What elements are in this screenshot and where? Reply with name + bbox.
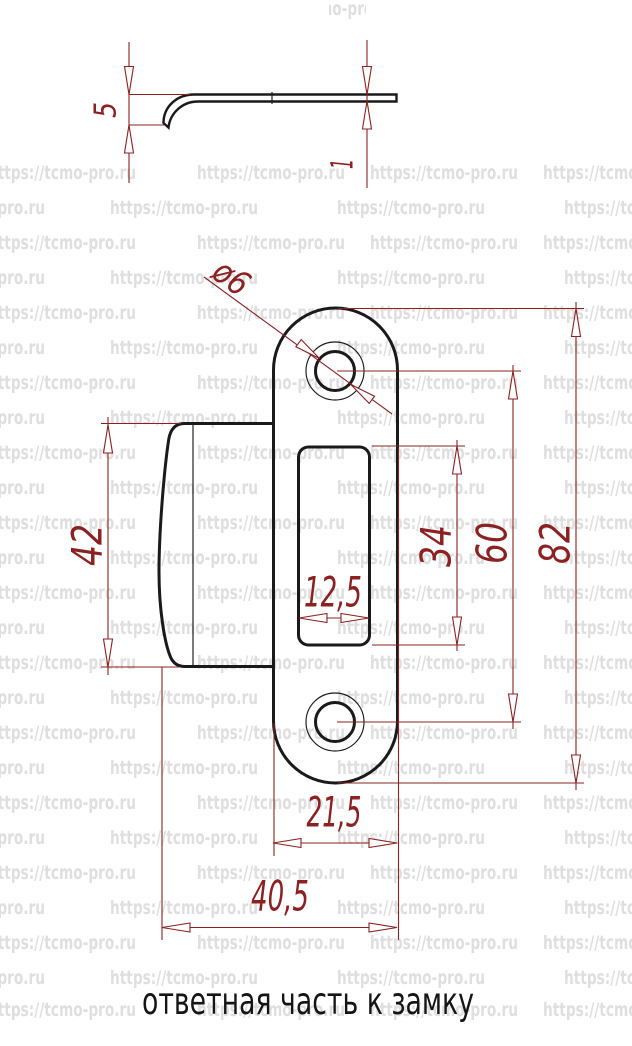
watermark-text: https://tcmo-pro.ru [197,372,345,394]
watermark-text: https://tcmo-pro.ru [337,897,485,919]
watermark-text: https://tcmo-pro.ru [564,477,632,499]
dim-label-tab-height: 42 [63,524,112,566]
watermark-text: https://tcmo-pro.ru [0,862,136,884]
watermark-text: https://tcmo-pro.ru [0,792,136,814]
dim-plate-thickness: 1 [326,40,372,188]
watermark-text: https://tcmo-pro.ru [247,0,395,20]
watermark-top-fragment: https://tcmo-pro.ru [247,0,395,20]
watermark-text: https://tcmo-pro.ru [0,687,45,709]
watermark-text: https://tcmo-pro.ru [0,897,45,919]
watermark-text: https://tcmo-pro.ru [197,932,345,954]
watermark-text: https://tcmo-pro.ru [337,757,485,779]
arrow-up [104,425,113,453]
arrow-up [363,101,372,129]
watermark-text: https://tcmo-pro.ru [370,302,518,324]
watermark-text: https://tcmo-pro.ru [0,337,45,359]
watermark-text: https://tcmo-pro.ru [370,862,518,884]
watermark-text: https://tcmo-pro.ru [0,757,45,779]
watermark-text: https://tcmo-pro.ru [0,827,45,849]
watermark-text: https://tcmo-pro.ru [337,617,485,639]
watermark-text: https://tcmo-pro.ru [0,442,136,464]
dim-label-plate-height: 82 [531,522,580,564]
watermark-text: https://tcmo-pro.ru [197,302,345,324]
watermark-text: https://tcmo-pro.ru [110,547,258,569]
watermark-text: https://tcmo-pro.ru [370,442,518,464]
watermark-text: https://tcmo-pro.ru [0,267,45,289]
dim-label-slot-height: 34 [412,525,461,567]
watermark-text: https://tcmo-pro.ru [370,162,518,184]
watermark-text: https://tcmo-pro.ru [543,162,632,184]
watermark-text: https://tcmo-pro.ru [0,617,45,639]
watermark-text: https://tcmo-pro.ru [370,722,518,744]
drawing-caption: ответная часть к замку [142,980,474,1023]
dim-label-holes-spacing: 60 [468,522,517,564]
watermark-text: https://tcmo-pro.ru [564,337,632,359]
watermark-text: https://tcmo-pro.ru [564,197,632,219]
watermark-text: https://tcmo-pro.ru [564,967,632,989]
watermark-text: https://tcmo-pro.ru [543,372,632,394]
watermark-text: https://tcmo-pro.ru [370,582,518,604]
watermark-text: https://tcmo-pro.ru [0,652,136,674]
watermark-text: https://tcmo-pro.ru [564,617,632,639]
watermark-text: https://tcmo-pro.ru [197,442,345,464]
watermark-text: https://tcmo-pro.ru [564,687,632,709]
watermark-text: https://tcmo-pro.ru [543,652,632,674]
watermark-text: https://tcmo-pro.ru [370,652,518,674]
watermark-text: https://tcmo-pro.ru [110,757,258,779]
watermark-text: https://tcmo-pro.ru [110,477,258,499]
watermark-text: https://tcmo-pro.ru [0,372,136,394]
watermark-text: https://tcmo-pro.ru [337,197,485,219]
watermark-text: https://tcmo-pro.ru [543,932,632,954]
dim-label-body-width: 21,5 [307,788,362,837]
technical-drawing: https://tcmo-pro.ruhttps://tcmo-pro.ruht… [0,0,632,1046]
watermark-text: https://tcmo-pro.ru [0,932,136,954]
watermark-text: https://tcmo-pro.ru [110,827,258,849]
watermark-text: https://tcmo-pro.ru [564,267,632,289]
watermark-text: https://tcmo-pro.ru [0,407,45,429]
watermark-text: https://tcmo-pro.ru [370,792,518,814]
watermark-text: https://tcmo-pro.ru [0,232,136,254]
watermark-text: https://tcmo-pro.ru [543,999,632,1021]
watermark-text: https://tcmo-pro.ru [564,407,632,429]
watermark-text: https://tcmo-pro.ru [370,232,518,254]
arrow-left [162,923,190,932]
watermark-text: https://tcmo-pro.ru [543,582,632,604]
dim-label-hole-diameter: ø6 [204,251,257,305]
watermark-text: https://tcmo-pro.ru [564,897,632,919]
watermark-text: https://tcmo-pro.ru [0,477,45,499]
arrow-left [273,839,301,848]
side-profile-outline [164,95,397,128]
arrow-right [369,923,397,932]
watermark-text: https://tcmo-pro.ru [0,197,45,219]
dim-label-lip-height: 5 [89,102,124,118]
arrow-up [125,125,134,153]
watermark-text: https://tcmo-pro.ru [337,477,485,499]
watermark-text: https://tcmo-pro.ru [0,582,136,604]
watermark-text: https://tcmo-pro.ru [0,999,136,1021]
watermark-text: https://tcmo-pro.ru [110,687,258,709]
arrow-down [363,67,372,95]
dim-label-plate-thickness: 1 [326,159,361,169]
watermark-text: https://tcmo-pro.ru [197,162,345,184]
dim-label-slot-width: 12,5 [304,568,362,617]
watermark-text: https://tcmo-pro.ru [0,302,136,324]
arrow-down [125,67,134,95]
watermark-text: https://tcmo-pro.ru [110,617,258,639]
watermark-text: https://tcmo-pro.ru [337,267,485,289]
watermark-text: https://tcmo-pro.ru [543,792,632,814]
watermark-text: https://tcmo-pro.ru [110,407,258,429]
watermark-text: https://tcmo-pro.ru [370,372,518,394]
watermark-text: https://tcmo-pro.ru [0,722,136,744]
drawing-page: https://tcmo-pro.ruhttps://tcmo-pro.ruht… [0,0,632,1046]
watermark-text: https://tcmo-pro.ru [543,442,632,464]
dim-label-overall-width: 40,5 [251,872,309,921]
watermark-text: https://tcmo-pro.ru [110,197,258,219]
watermark-text: https://tcmo-pro.ru [370,932,518,954]
watermark-text: https://tcmo-pro.ru [564,827,632,849]
watermark-text: https://tcmo-pro.ru [0,547,45,569]
watermark-text: https://tcmo-pro.ru [110,337,258,359]
watermark-text: https://tcmo-pro.ru [0,967,45,989]
dim-slot-width: 12,5 [299,568,369,623]
watermark-text: https://tcmo-pro.ru [0,162,136,184]
watermark-text: https://tcmo-pro.ru [543,862,632,884]
watermark-text: https://tcmo-pro.ru [110,897,258,919]
watermark-text: https://tcmo-pro.ru [197,512,345,534]
watermark-text: https://tcmo-pro.ru [197,722,345,744]
watermark-text: https://tcmo-pro.ru [543,302,632,324]
watermark-text: https://tcmo-pro.ru [197,652,345,674]
watermark-text: https://tcmo-pro.ru [543,722,632,744]
watermark-text: https://tcmo-pro.ru [197,232,345,254]
arrow-down [509,694,518,722]
watermark-text: https://tcmo-pro.ru [543,232,632,254]
watermark-text: https://tcmo-pro.ru [337,407,485,429]
